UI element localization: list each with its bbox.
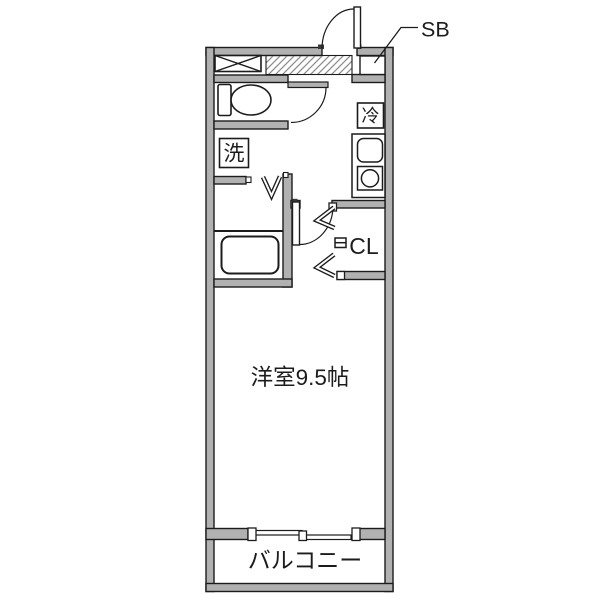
entrance-door-leaf [354, 7, 361, 48]
wall-left [206, 48, 214, 592]
wall-right [385, 48, 393, 592]
toilet-tank-icon [218, 85, 231, 116]
refrigerator-label: 冷 [362, 106, 380, 126]
wall-toilet-top [214, 75, 288, 83]
wall-bath-bottom [214, 279, 292, 287]
toilet-room [218, 82, 328, 123]
main-room-label: 洋室9.5帖 [251, 365, 350, 390]
bifold-door-icon [263, 177, 280, 196]
bathtub-icon [222, 237, 279, 274]
kitchen: 冷 [352, 103, 385, 198]
hatched-entry-floor [266, 56, 352, 75]
window-pane-right [302, 535, 351, 540]
floorplan-drawing: SB 洗 冷 C [0, 0, 600, 600]
shoe-box-label: SB [421, 18, 450, 42]
window-cap-left [248, 528, 256, 541]
washer-label: 洗 [224, 143, 245, 166]
toilet-door-arc [291, 88, 326, 123]
window-cap-right [352, 528, 360, 541]
wall-shoebox-bar [352, 75, 385, 83]
main-room: 洋室9.5帖 [251, 365, 350, 390]
wall-room-bottom-left [206, 529, 248, 540]
jamb-entrance-left [318, 45, 324, 50]
bathroom [214, 177, 283, 274]
window-pane-left [255, 531, 302, 536]
washroom: 洗 [220, 139, 249, 168]
wall-toilet-bottom [214, 121, 288, 129]
cap-washroom-wall [246, 177, 251, 183]
wall-washroom-bottom [214, 177, 246, 185]
balcony-label: バルコニー [248, 547, 363, 573]
entrance-area: SB [215, 7, 450, 75]
room-door-leaf [293, 202, 300, 245]
toilet-bowl-icon [231, 85, 271, 115]
cap-bathwall-top [284, 173, 289, 178]
toilet-door-leaf [288, 82, 328, 88]
floorplan-canvas: SB 洗 冷 C [0, 0, 600, 600]
balcony: バルコニー [248, 547, 363, 573]
wall-bottom [206, 584, 393, 592]
sliding-window [248, 528, 360, 541]
walls [206, 48, 393, 592]
wall-bath-right [283, 174, 292, 287]
sink-icon [358, 139, 383, 163]
wall-room-bottom-right [358, 529, 385, 540]
shoe-box [360, 56, 385, 75]
wall-top-left [206, 48, 322, 56]
closet-label: CL [349, 233, 379, 259]
stove-burner-icon [361, 170, 378, 187]
wall-closet-top [332, 201, 385, 209]
closet: CL [317, 203, 379, 280]
entrance-door-arc [322, 9, 354, 49]
closet-pivot-cap-bottom [337, 272, 345, 280]
window-cap-middle [299, 531, 307, 541]
